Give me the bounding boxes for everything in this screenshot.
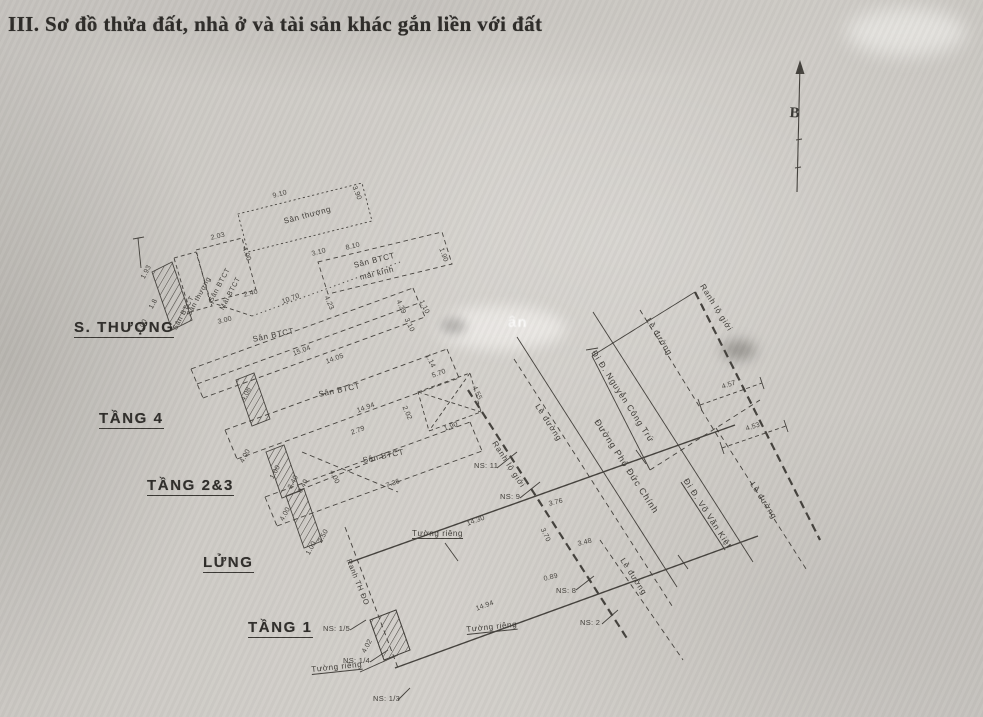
neighbor-parcel-label: NS: 1/4 xyxy=(343,657,370,665)
ground-parcel xyxy=(345,425,758,672)
area-label: Tường riêng xyxy=(412,530,463,539)
street-edge-a xyxy=(517,337,677,587)
parcel-top-wall xyxy=(348,425,735,563)
floor-level-label: S. THƯỢNG xyxy=(74,320,174,338)
block-bottom-edge xyxy=(650,400,760,470)
floor-level-label: TẦNG 1 xyxy=(248,620,313,638)
road-boundary-line-2 xyxy=(695,292,820,540)
neighbor-parcel-label: NS: 11 xyxy=(474,462,498,470)
neighbor-parcel-label: NS: 8 xyxy=(556,587,576,595)
rooftop-glass-roof-outline xyxy=(318,232,452,294)
north-arrow xyxy=(795,60,805,192)
neighbor-parcel-label: NS: 2 xyxy=(580,619,600,627)
neighbor-parcel-label: NS: 1/5 xyxy=(323,625,350,633)
neighbor-parcel-label: NS: 9 xyxy=(500,493,520,501)
north-label: B xyxy=(789,106,800,122)
parcel-sketch-canvas xyxy=(0,0,983,717)
block-top-edge xyxy=(592,292,695,356)
floor-level-label: LỬNG xyxy=(203,555,254,573)
boundary-tick xyxy=(138,238,141,268)
scanned-certificate-page: ân III. Sơ đồ thửa đất, nhà ở và tài sản… xyxy=(0,0,983,717)
leader-line xyxy=(445,543,458,561)
floor-level-label: TẦNG 2&3 xyxy=(147,478,234,496)
floor-level-label: TẦNG 4 xyxy=(99,411,164,429)
neighbor-parcel-label: NS: 1/3 xyxy=(373,695,400,703)
parcel-bottom-wall xyxy=(395,536,758,668)
